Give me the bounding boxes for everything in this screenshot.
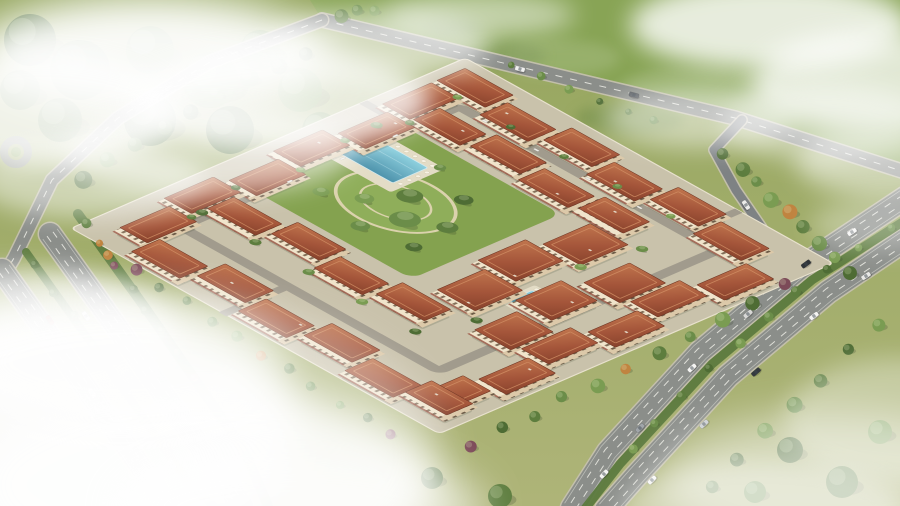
tree-highlight <box>736 339 741 344</box>
tree-highlight <box>764 193 772 201</box>
tree-highlight <box>765 313 770 318</box>
tree-highlight <box>508 62 511 65</box>
tree-highlight <box>466 441 472 447</box>
tree-highlight <box>737 163 745 171</box>
tree-highlight <box>747 297 754 304</box>
tree-highlight <box>538 72 543 77</box>
tree-highlight <box>813 237 821 245</box>
tree-highlight <box>104 251 109 256</box>
tree-highlight <box>797 221 804 228</box>
tree-highlight <box>132 265 138 271</box>
tree-highlight <box>557 392 563 398</box>
tree-highlight <box>597 98 601 102</box>
tree-highlight <box>654 347 661 354</box>
tree-highlight <box>621 365 626 370</box>
tree-highlight <box>651 420 655 424</box>
tree-highlight <box>490 486 502 498</box>
tree-highlight <box>498 422 504 428</box>
tree-highlight <box>530 412 536 418</box>
tree-highlight <box>823 265 828 270</box>
tree-highlight <box>705 365 709 369</box>
tree-highlight <box>82 219 87 224</box>
tree-highlight <box>718 149 724 155</box>
tree-highlight <box>716 313 724 321</box>
tree-highlight <box>155 283 160 288</box>
aerial-render-canvas <box>0 0 900 506</box>
tree-highlight <box>874 320 881 327</box>
tree-highlight <box>752 177 757 182</box>
tree-highlight <box>111 262 115 266</box>
aerial-scene <box>0 0 900 506</box>
tree-highlight <box>677 392 682 397</box>
tree-highlight <box>792 287 797 292</box>
tree-highlight <box>830 252 836 258</box>
tree-highlight <box>844 345 850 351</box>
tree-highlight <box>565 85 570 90</box>
tree-highlight <box>844 267 851 274</box>
tree-highlight <box>592 380 600 388</box>
tree-highlight <box>784 205 792 213</box>
tree-highlight <box>780 279 786 285</box>
tree-highlight <box>686 332 692 338</box>
tree-highlight <box>629 445 634 450</box>
tree-highlight <box>31 261 35 265</box>
tree-highlight <box>97 240 101 244</box>
tree-highlight <box>353 6 359 12</box>
